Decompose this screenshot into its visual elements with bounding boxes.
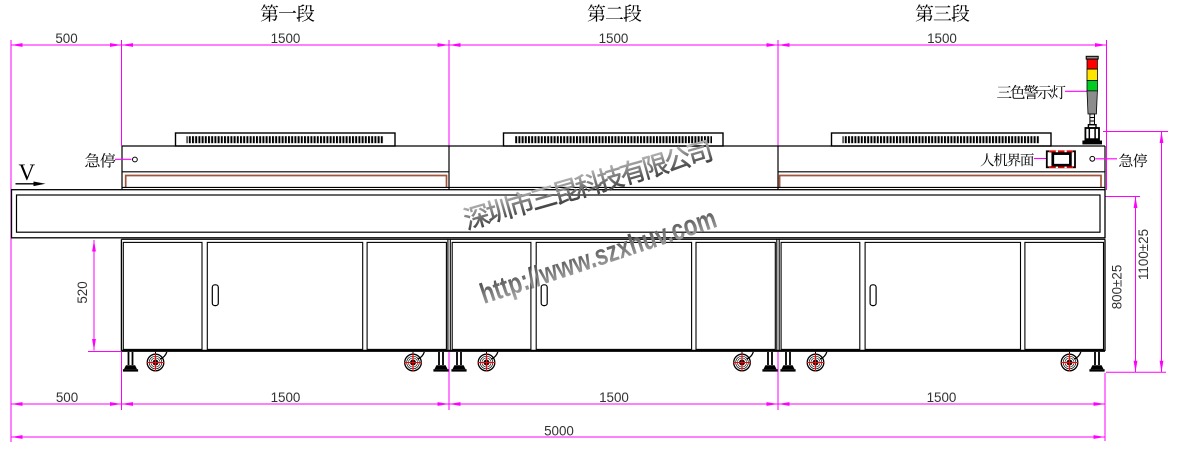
svg-text:1500: 1500 [271,31,301,46]
svg-text:500: 500 [56,390,78,405]
svg-text:520: 520 [75,281,90,303]
svg-text:800±25: 800±25 [1110,265,1125,310]
svg-text:V: V [19,160,36,185]
svg-text:1500: 1500 [599,390,629,405]
svg-text:1100±25: 1100±25 [1136,229,1151,280]
svg-text:1500: 1500 [271,390,301,405]
svg-text:1500: 1500 [927,390,957,405]
svg-text:1500: 1500 [599,31,629,46]
svg-text:1500: 1500 [927,31,957,46]
svg-text:5000: 5000 [544,423,574,438]
svg-text:500: 500 [55,31,77,46]
